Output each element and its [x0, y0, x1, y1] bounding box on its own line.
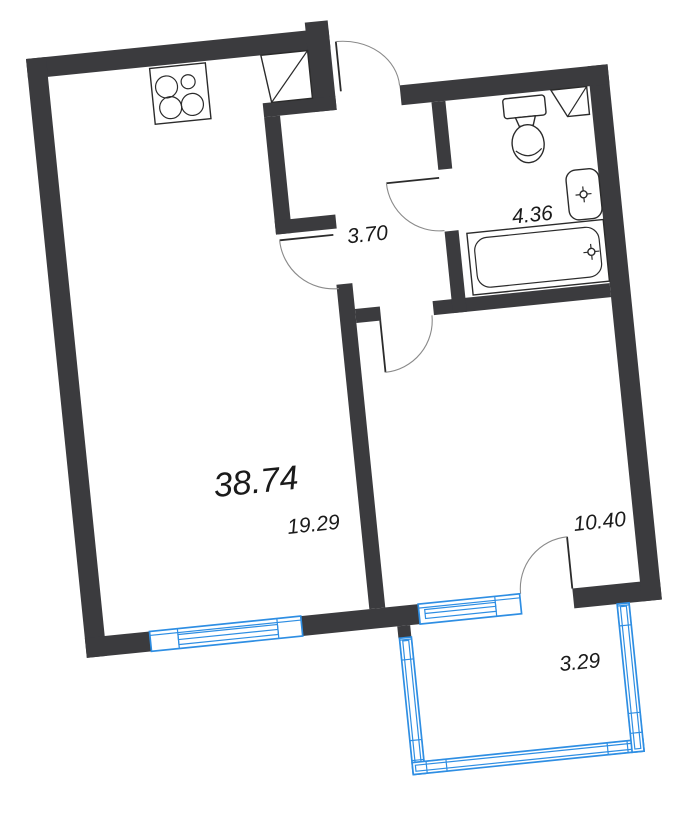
room-door-leaf	[380, 321, 385, 373]
bathtub-outer	[467, 219, 610, 295]
bathroom-door-leaf	[386, 178, 439, 183]
stove-body	[150, 63, 211, 124]
shaft-icon-bathroom	[551, 86, 590, 117]
balcony-glazing-left	[399, 637, 425, 775]
living-room-door-arc	[280, 235, 339, 294]
wall-balcony-stub	[397, 625, 411, 638]
wall-room-divider	[336, 283, 385, 609]
balcony-door-arc	[515, 537, 572, 594]
room-window	[418, 594, 521, 624]
label-living-room-area: 19.29	[286, 511, 341, 539]
wall-bathroom-left-upper	[431, 101, 452, 170]
balcony-glazing	[398, 603, 644, 775]
toilet-bowl	[510, 123, 546, 164]
living-room-door-leaf	[280, 235, 334, 240]
living-room-window	[149, 616, 302, 651]
toilet-tank	[502, 95, 546, 119]
room-door-arc	[380, 315, 437, 372]
label-bathroom-area: 4.36	[511, 202, 554, 229]
living-room-door	[280, 235, 339, 294]
balcony-door-leaf	[567, 537, 572, 589]
entrance-door-leaf	[336, 42, 341, 92]
floor-plan-drawing: 38.74 19.29 3.70 4.36 10.40 3.29	[20, 0, 689, 821]
entrance-door-arc	[336, 36, 400, 92]
balcony-door	[515, 537, 572, 594]
wall-divider-stub	[355, 307, 381, 323]
stove-icon	[150, 63, 211, 124]
interior-walls	[263, 70, 644, 646]
floor-plan: 38.74 19.29 3.70 4.36 10.40 3.29	[20, 0, 689, 821]
room-door	[380, 315, 437, 372]
faucet-icon	[588, 248, 596, 256]
label-total-area: 38.74	[212, 459, 300, 505]
bathroom-door-arc	[386, 178, 444, 236]
label-room-area: 10.40	[572, 508, 627, 536]
sink-icon	[565, 168, 603, 221]
label-hallway-area: 3.70	[346, 221, 389, 248]
bathtub-icon	[467, 219, 610, 295]
faucet-icon	[580, 191, 588, 199]
toilet-icon	[502, 95, 550, 165]
label-balcony-area: 3.29	[558, 649, 601, 676]
wall-left	[26, 57, 107, 658]
shaft-outline	[261, 51, 313, 104]
shaft-icon-kitchen	[261, 51, 313, 104]
entrance-door	[336, 36, 400, 92]
bathroom-door	[386, 178, 444, 236]
wall-kitchen-partition	[264, 116, 292, 235]
